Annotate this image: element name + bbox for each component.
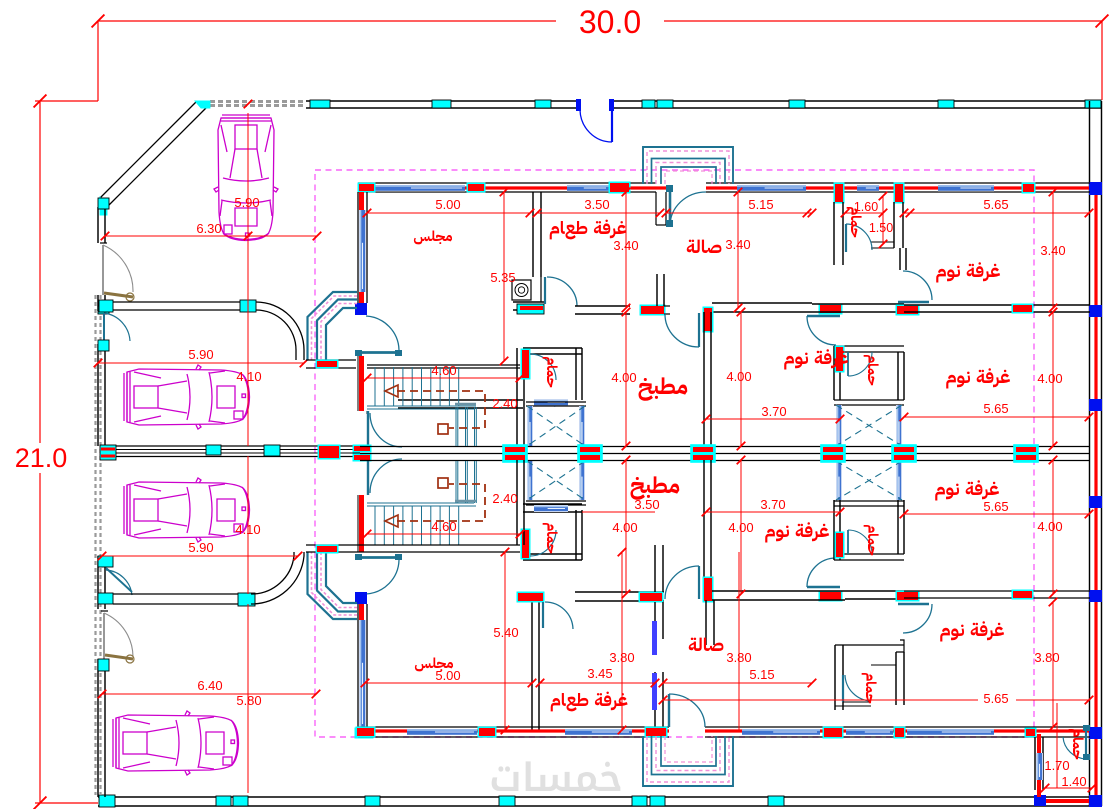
svg-text:2.40: 2.40 [492, 491, 517, 506]
svg-text:3.80: 3.80 [609, 650, 634, 665]
svg-text:5.65: 5.65 [983, 499, 1008, 514]
svg-text:5.15: 5.15 [748, 197, 773, 212]
svg-text:3.80: 3.80 [726, 650, 751, 665]
svg-text:6.30: 6.30 [196, 221, 221, 236]
svg-text:6.40: 6.40 [197, 678, 222, 693]
svg-text:1.50: 1.50 [869, 221, 893, 235]
svg-text:5.65: 5.65 [983, 401, 1008, 416]
svg-text:4.00: 4.00 [1037, 371, 1062, 386]
svg-text:1.60: 1.60 [854, 200, 878, 214]
svg-text:3.80: 3.80 [1034, 650, 1059, 665]
svg-text:4.60: 4.60 [431, 519, 456, 534]
svg-text:4.10: 4.10 [236, 369, 261, 384]
svg-text:5.90: 5.90 [188, 540, 213, 555]
svg-text:5.65: 5.65 [983, 197, 1008, 212]
svg-text:2.40: 2.40 [492, 396, 517, 411]
svg-text:5.65: 5.65 [983, 691, 1008, 706]
svg-text:4.00: 4.00 [611, 370, 636, 385]
svg-text:5.35: 5.35 [490, 270, 515, 285]
svg-text:5.90: 5.90 [234, 195, 259, 210]
svg-text:3.70: 3.70 [760, 497, 785, 512]
svg-text:3.50: 3.50 [634, 497, 659, 512]
svg-text:5.00: 5.00 [435, 668, 460, 683]
svg-text:3.40: 3.40 [1040, 243, 1065, 258]
svg-text:3.40: 3.40 [613, 238, 638, 253]
svg-text:3.40: 3.40 [725, 237, 750, 252]
svg-text:5.15: 5.15 [749, 667, 774, 682]
svg-text:21.0: 21.0 [15, 443, 68, 473]
svg-text:1.70: 1.70 [1044, 758, 1069, 773]
svg-text:5.90: 5.90 [188, 347, 213, 362]
svg-text:1.40: 1.40 [1061, 774, 1086, 789]
svg-text:4.00: 4.00 [1037, 519, 1062, 534]
svg-text:4.60: 4.60 [431, 363, 456, 378]
svg-text:4.10: 4.10 [235, 522, 260, 537]
svg-text:4.00: 4.00 [728, 520, 753, 535]
svg-text:5.80: 5.80 [236, 693, 261, 708]
svg-text:30.0: 30.0 [579, 4, 641, 40]
svg-text:5.40: 5.40 [493, 625, 518, 640]
svg-text:4.00: 4.00 [612, 520, 637, 535]
svg-text:5.00: 5.00 [435, 197, 460, 212]
svg-text:3.50: 3.50 [584, 197, 609, 212]
svg-text:4.00: 4.00 [726, 369, 751, 384]
svg-text:3.45: 3.45 [587, 666, 612, 681]
svg-text:3.70: 3.70 [761, 404, 786, 419]
